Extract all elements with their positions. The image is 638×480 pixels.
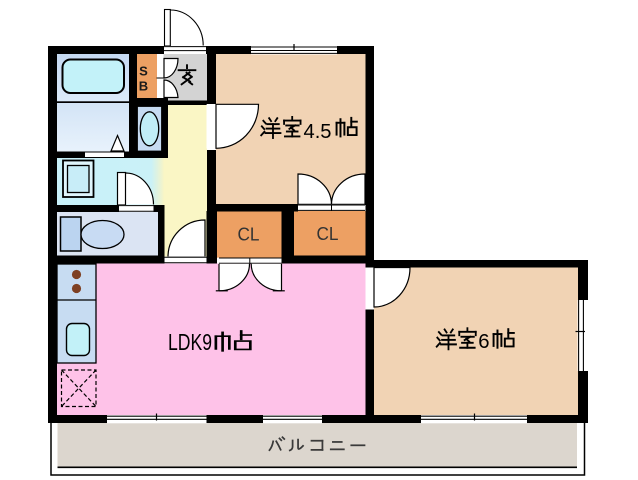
svg-text:CL: CL [238, 225, 260, 245]
svg-text:LDK9: LDK9 [168, 329, 212, 355]
svg-text:B: B [139, 79, 148, 94]
svg-text:6: 6 [478, 330, 489, 353]
svg-text:4.5: 4.5 [304, 120, 332, 143]
svg-text:CL: CL [317, 224, 339, 244]
svg-text:S: S [139, 64, 148, 79]
